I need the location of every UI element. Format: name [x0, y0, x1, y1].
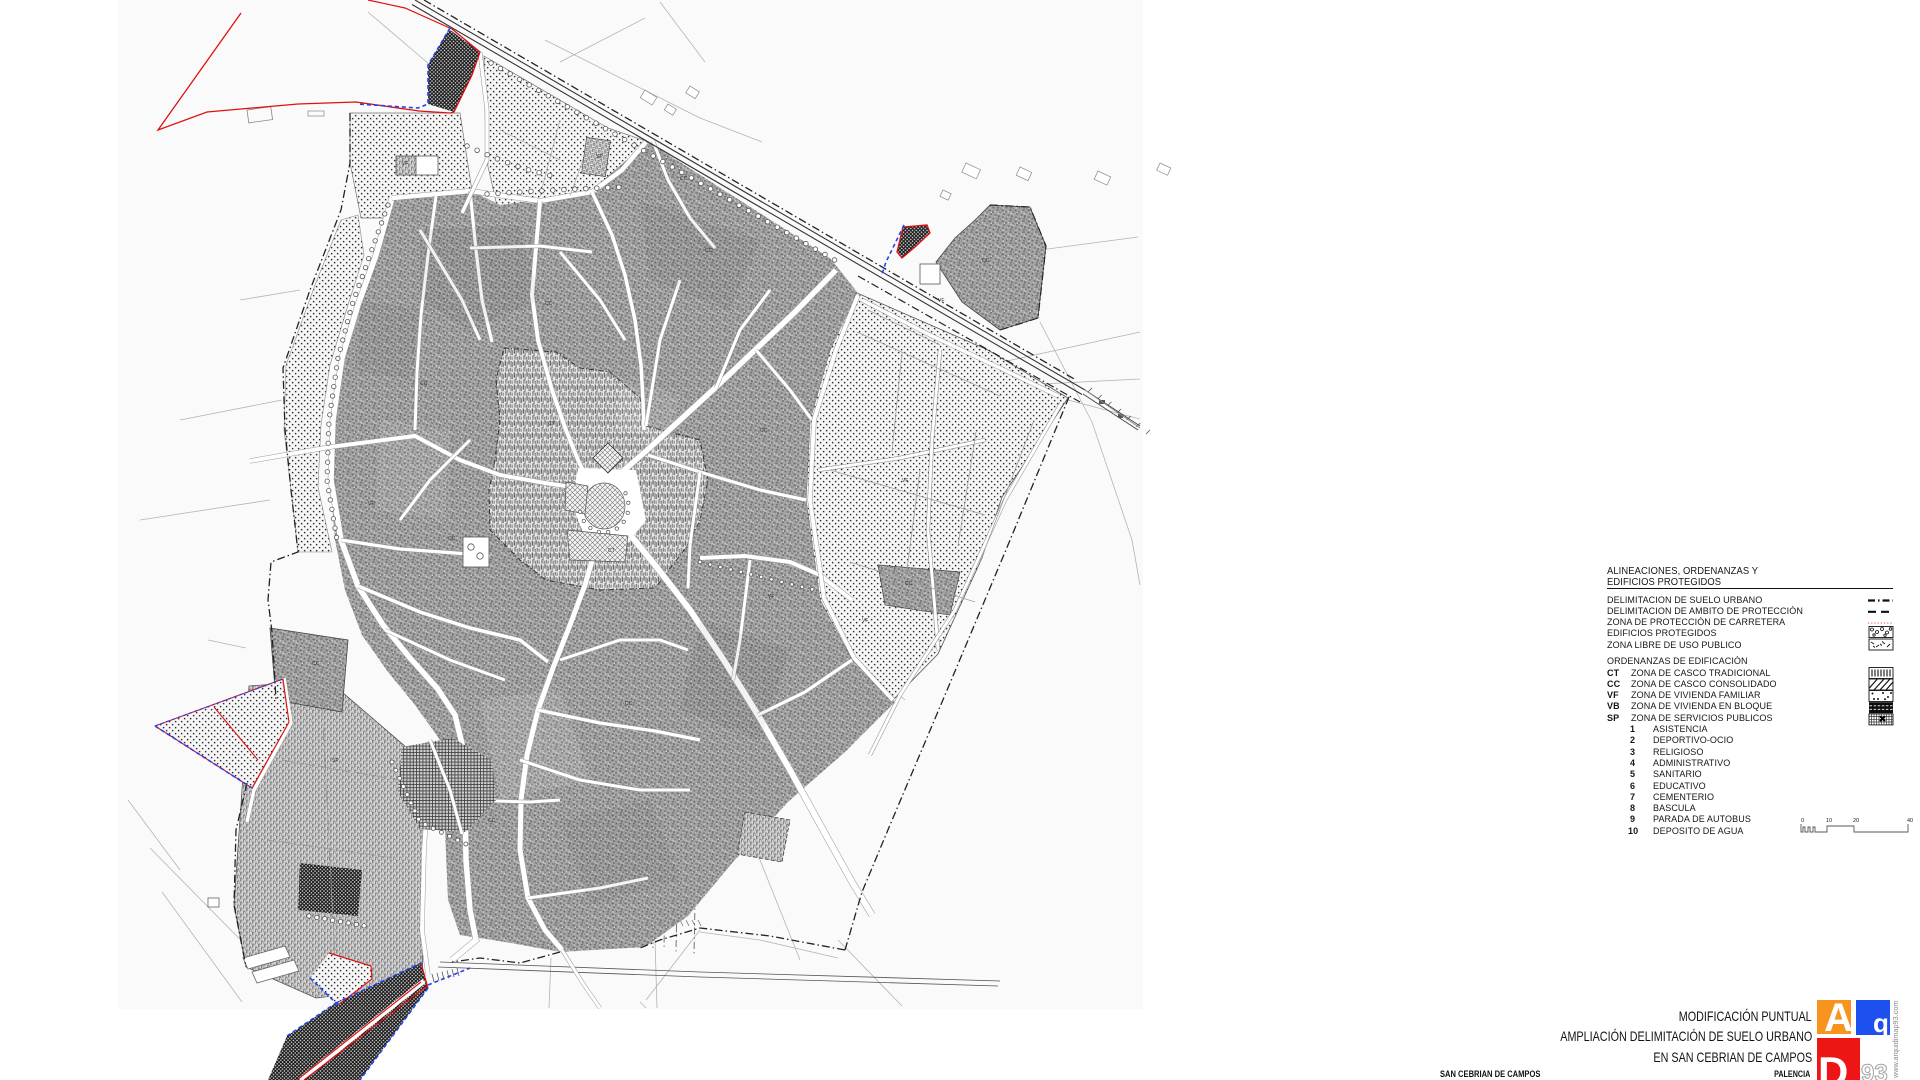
svg-text:CC: CC [352, 898, 360, 904]
svg-text:CC: CC [420, 381, 428, 387]
svg-text:CC: CC [448, 536, 456, 542]
svg-text:CC: CC [545, 301, 553, 307]
svg-text:SP: SP [332, 758, 339, 764]
svg-text:40: 40 [1907, 818, 1913, 824]
svg-text:VF: VF [402, 161, 408, 167]
svg-text:VF: VF [862, 618, 868, 624]
svg-text:CC: CC [705, 248, 713, 254]
svg-text:CC: CC [312, 661, 320, 667]
svg-text:www.arquidimap93.com: www.arquidimap93.com [1891, 1001, 1900, 1079]
svg-text:20: 20 [1853, 818, 1859, 824]
svg-text:CC: CC [625, 701, 633, 707]
svg-text:CC: CC [905, 581, 913, 587]
svg-text:VF: VF [368, 501, 374, 507]
svg-text:CC: CC [680, 176, 688, 182]
svg-text:SP: SP [596, 154, 603, 160]
svg-text:CC: CC [982, 258, 990, 264]
svg-text:10: 10 [1826, 818, 1832, 824]
svg-text:CC: CC [488, 818, 496, 824]
svg-text:CT: CT [608, 548, 615, 554]
svg-text:0: 0 [1801, 818, 1804, 824]
svg-text:CT: CT [548, 421, 555, 427]
svg-text:VF: VF [938, 298, 944, 304]
svg-text:VF: VF [768, 594, 774, 600]
svg-text:VF: VF [902, 478, 908, 484]
svg-text:CC: CC [760, 428, 768, 434]
